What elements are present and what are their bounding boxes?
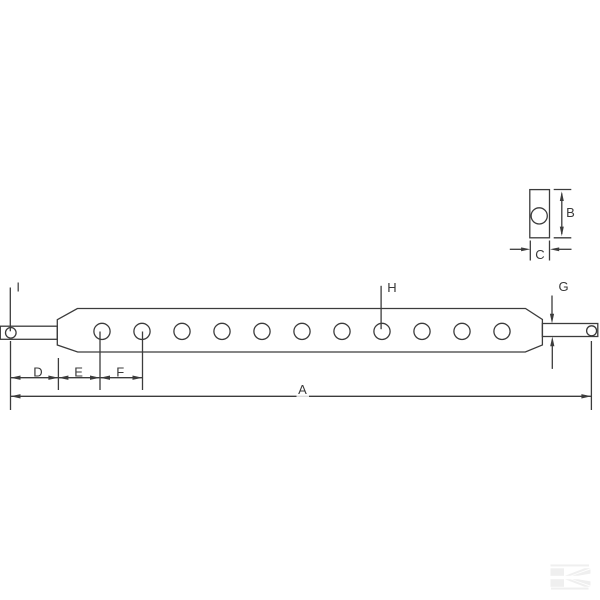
svg-text:C: C xyxy=(535,247,544,262)
svg-text:B: B xyxy=(566,205,575,220)
svg-text:D: D xyxy=(33,364,42,379)
svg-text:E: E xyxy=(74,364,83,379)
svg-text:G: G xyxy=(558,279,568,294)
svg-text:A: A xyxy=(298,382,307,397)
svg-text:H: H xyxy=(387,280,396,295)
svg-text:I: I xyxy=(16,280,20,295)
svg-text:F: F xyxy=(116,364,124,379)
